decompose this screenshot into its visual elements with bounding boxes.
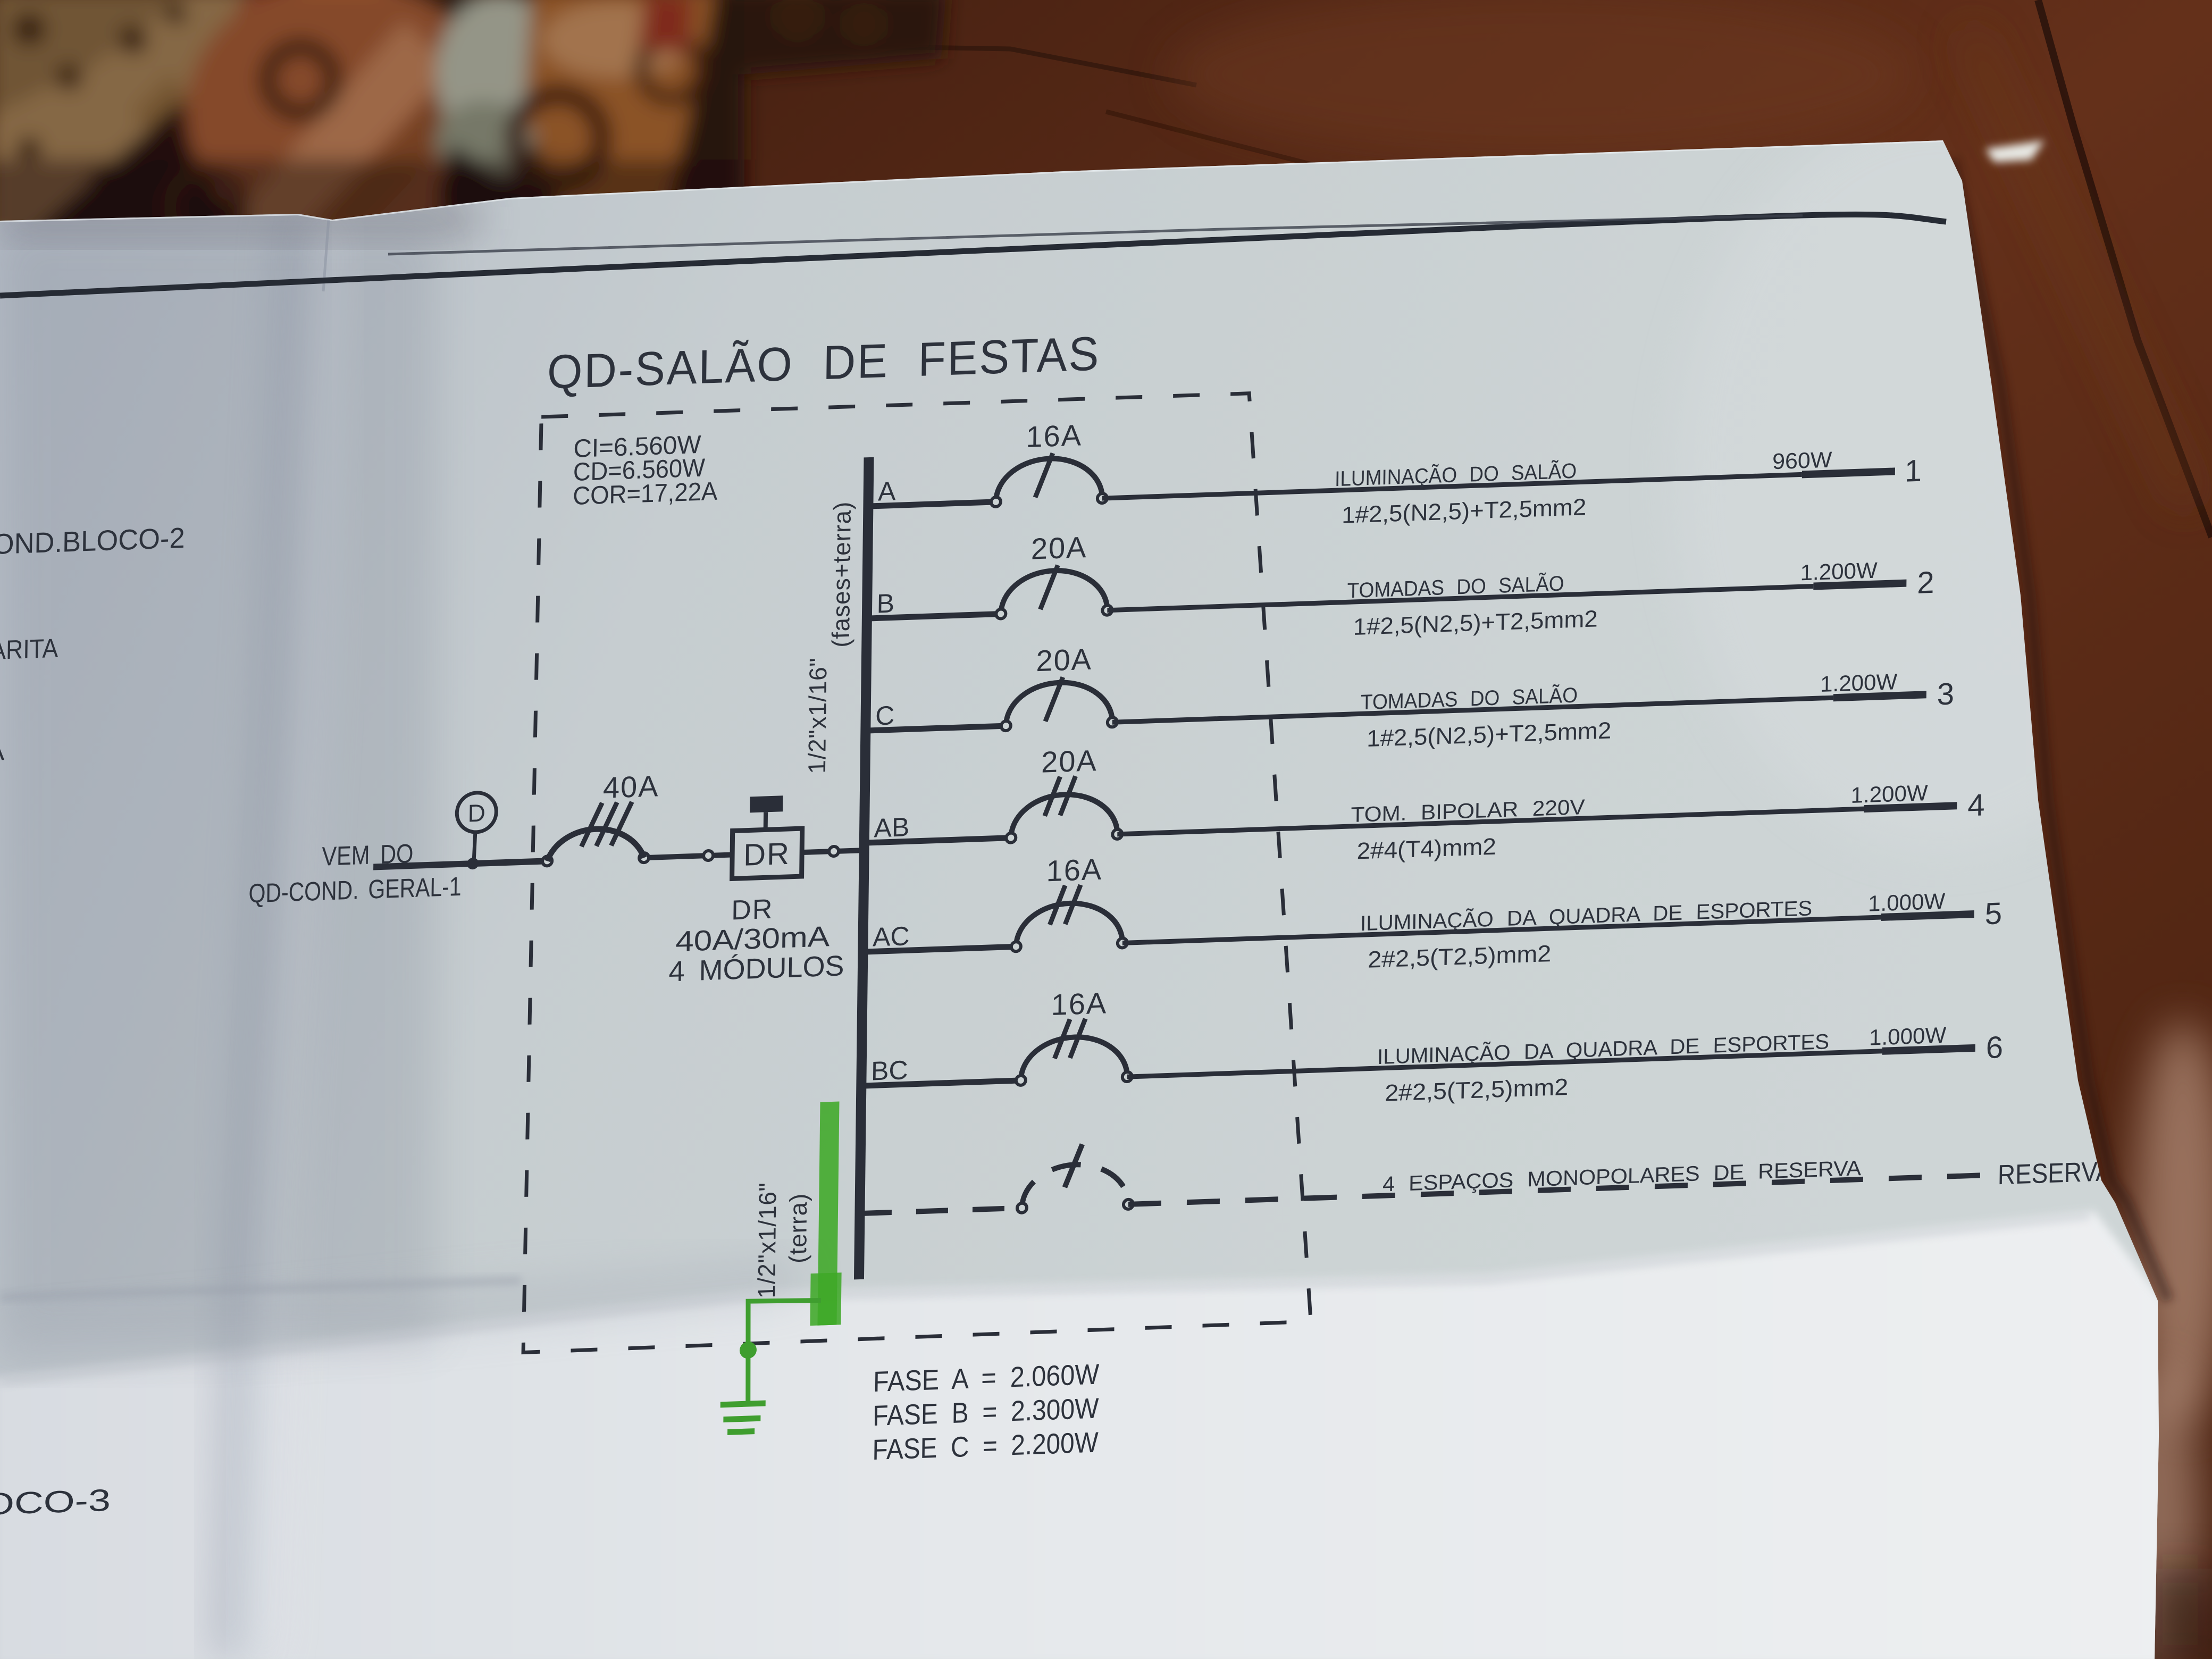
svg-text:1.200W: 1.200W	[1800, 557, 1878, 585]
svg-text:RESERVA: RESERVA	[1998, 1156, 2113, 1191]
svg-text:A: A	[0, 736, 5, 766]
svg-text:COR=17,22A: COR=17,22A	[573, 477, 718, 510]
svg-text:1/2"x1/16": 1/2"x1/16"	[752, 1182, 782, 1299]
svg-text:DR: DR	[743, 836, 791, 873]
svg-text:20A: 20A	[1041, 743, 1097, 779]
svg-text:16A: 16A	[1026, 418, 1082, 454]
svg-text:2: 2	[1917, 565, 1934, 600]
svg-text:1.200W: 1.200W	[1850, 780, 1928, 808]
svg-text:16A: 16A	[1046, 852, 1102, 888]
svg-text:C: C	[875, 700, 895, 731]
svg-text:B: B	[876, 588, 894, 618]
svg-text:ARITA: ARITA	[0, 633, 58, 665]
svg-text:1: 1	[1905, 454, 1922, 489]
svg-text:1.000W: 1.000W	[1869, 1023, 1947, 1050]
svg-text:(terra): (terra)	[784, 1193, 812, 1264]
svg-text:40A: 40A	[603, 769, 659, 805]
svg-text:4: 4	[1967, 787, 1985, 823]
svg-text:OND.BLOCO-2: OND.BLOCO-2	[0, 522, 185, 560]
svg-text:(fases+terra): (fases+terra)	[827, 501, 856, 648]
svg-text:A: A	[878, 476, 896, 506]
svg-text:4 MÓDULOS: 4 MÓDULOS	[668, 950, 844, 987]
svg-text:5: 5	[1984, 896, 2002, 931]
svg-text:1/2"x1/16": 1/2"x1/16"	[803, 657, 832, 774]
svg-text:2#4(T4)mm2: 2#4(T4)mm2	[1356, 834, 1496, 865]
svg-text:BC: BC	[871, 1055, 908, 1086]
svg-text:3: 3	[1937, 676, 1954, 711]
svg-text:OCO-3: OCO-3	[0, 1483, 111, 1522]
svg-text:16A: 16A	[1051, 986, 1107, 1021]
svg-text:1.000W: 1.000W	[1868, 889, 1946, 916]
svg-text:VEM DO: VEM DO	[322, 839, 414, 872]
svg-text:20A: 20A	[1031, 530, 1087, 566]
svg-text:AC: AC	[873, 921, 910, 952]
svg-text:1.200W: 1.200W	[1820, 669, 1898, 697]
svg-text:AB: AB	[874, 812, 909, 843]
svg-text:20A: 20A	[1036, 642, 1092, 678]
svg-text:960W: 960W	[1772, 447, 1832, 474]
svg-text:D: D	[467, 799, 485, 827]
svg-text:6: 6	[1985, 1030, 2003, 1065]
svg-text:DR: DR	[731, 894, 774, 926]
